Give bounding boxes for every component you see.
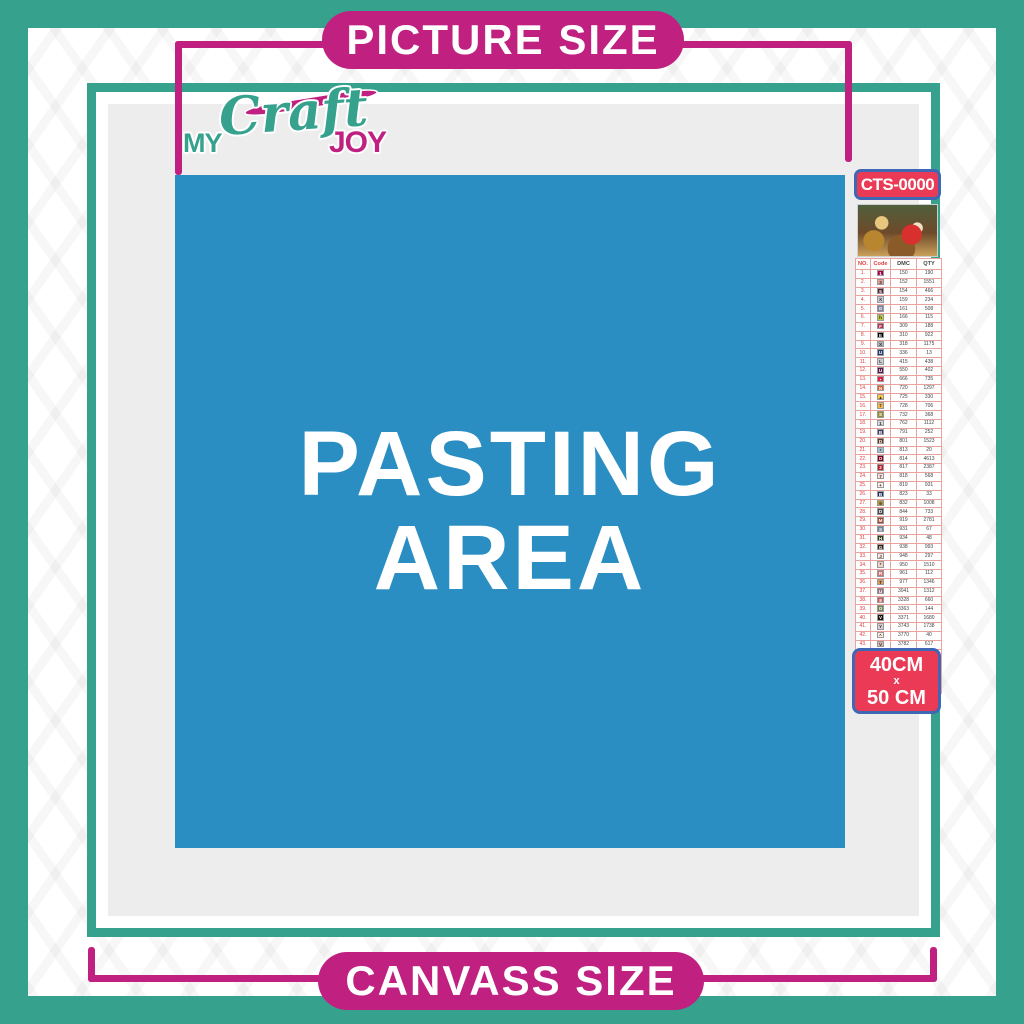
cell-dmc: 666 — [891, 375, 917, 384]
table-row: 28.D844733 — [856, 508, 942, 517]
table-row: 20.D8011523 — [856, 437, 942, 446]
table-row: 6.h166115 — [856, 314, 942, 323]
cell-qty: 733 — [917, 508, 942, 517]
cell-dmc: 720 — [891, 384, 917, 393]
cell-qty: 1551 — [917, 278, 942, 287]
code-symbol-swatch: D — [877, 438, 883, 444]
code-symbol-swatch: T — [877, 579, 883, 585]
cell-dmc: 550 — [891, 367, 917, 376]
cell-dmc: 310 — [891, 331, 917, 340]
cell-no: 15. — [856, 393, 871, 402]
cell-no: 23. — [856, 464, 871, 473]
cell-dmc: 762 — [891, 420, 917, 429]
table-row: 2.31521551 — [856, 278, 942, 287]
dmc-table-body: 1.11501902.315215513.51544664.X1592345.G… — [856, 270, 942, 694]
cell-qty: 4613 — [917, 455, 942, 464]
cell-qty: 20 — [917, 446, 942, 455]
table-row: 24.7818568 — [856, 473, 942, 482]
header-no: NO. — [856, 259, 871, 270]
cell-code: J — [871, 552, 891, 561]
code-symbol-swatch: U — [877, 588, 883, 594]
cell-dmc: 950 — [891, 561, 917, 570]
product-template-card: MY Craft JOY PASTING AREA CTS-0000 NO. C… — [0, 0, 1024, 1024]
cell-no: 10. — [856, 349, 871, 358]
table-row: 10.U33613 — [856, 349, 942, 358]
pasting-area-line1: PASTING — [298, 418, 721, 512]
cell-no: 6. — [856, 314, 871, 323]
cell-dmc: 3363 — [891, 605, 917, 614]
cell-dmc: 166 — [891, 314, 917, 323]
cell-no: 28. — [856, 508, 871, 517]
cell-dmc: 801 — [891, 437, 917, 446]
code-symbol-swatch: D — [877, 508, 883, 514]
table-row: 40.V33711680 — [856, 614, 942, 623]
cell-qty: 438 — [917, 358, 942, 367]
code-symbol-swatch: 1 — [877, 270, 883, 276]
cell-code: F — [871, 322, 891, 331]
table-row: 4.X159234 — [856, 296, 942, 305]
cell-code: L — [871, 358, 891, 367]
cell-code: M — [871, 517, 891, 526]
table-row: 35.R961112 — [856, 570, 942, 579]
cell-no: 42. — [856, 631, 871, 640]
header-dmc: DMC — [891, 259, 917, 270]
cell-no: 12. — [856, 367, 871, 376]
cell-dmc: 150 — [891, 270, 917, 279]
cell-dmc: 948 — [891, 552, 917, 561]
table-row: 1.1150190 — [856, 270, 942, 279]
cell-code: 1 — [871, 420, 891, 429]
code-symbol-swatch: + — [877, 482, 883, 488]
cell-code: E — [871, 331, 891, 340]
table-row: 25.+819931 — [856, 481, 942, 490]
code-symbol-swatch: 5 — [877, 288, 883, 294]
cell-qty: 568 — [917, 473, 942, 482]
cell-code: 2 — [871, 464, 891, 473]
cell-qty: 922 — [917, 331, 942, 340]
cell-no: 4. — [856, 296, 871, 305]
cell-no: 2. — [856, 278, 871, 287]
cell-no: 25. — [856, 481, 871, 490]
table-row: 21.*81320 — [856, 446, 942, 455]
cell-qty: 67 — [917, 526, 942, 535]
cell-qty: 330 — [917, 393, 942, 402]
code-symbol-swatch: X — [877, 296, 883, 302]
cell-dmc: 931 — [891, 526, 917, 535]
picture-frame-line-right — [845, 41, 852, 162]
cell-qty: 1175 — [917, 340, 942, 349]
table-row: 7.F309188 — [856, 322, 942, 331]
cell-qty: 48 — [917, 534, 942, 543]
size-height: 50 CM — [867, 688, 926, 708]
cell-code: * — [871, 561, 891, 570]
code-symbol-swatch: 9 — [877, 500, 883, 506]
cell-dmc: 919 — [891, 517, 917, 526]
cell-code: 8 — [871, 596, 891, 605]
cell-no: 33. — [856, 552, 871, 561]
cell-no: 13. — [856, 375, 871, 384]
code-symbol-swatch: M — [877, 517, 883, 523]
cell-dmc: 818 — [891, 473, 917, 482]
table-row: 12.U550402 — [856, 367, 942, 376]
cell-code: D — [871, 508, 891, 517]
cell-qty: 190 — [917, 270, 942, 279]
cell-dmc: 154 — [891, 287, 917, 296]
brand-logo: MY Craft JOY — [183, 98, 393, 168]
cell-no: 7. — [856, 322, 871, 331]
cell-dmc: 791 — [891, 428, 917, 437]
table-row: 13.▪666735 — [856, 375, 942, 384]
cell-code: S — [871, 411, 891, 420]
cell-code: U — [871, 587, 891, 596]
cell-code: 7 — [871, 473, 891, 482]
code-symbol-swatch: V — [877, 614, 883, 620]
cell-no: 5. — [856, 305, 871, 314]
cell-code: U — [871, 349, 891, 358]
cell-no: 11. — [856, 358, 871, 367]
table-row: 17.S732368 — [856, 411, 942, 420]
cell-qty: 1008 — [917, 499, 942, 508]
cell-no: 17. — [856, 411, 871, 420]
pasting-area-line2: AREA — [374, 512, 647, 606]
header-code: Code — [871, 259, 891, 270]
cell-dmc: 725 — [891, 393, 917, 402]
cell-dmc: 3328 — [891, 596, 917, 605]
code-symbol-swatch: 1 — [877, 420, 883, 426]
cell-qty: 188 — [917, 322, 942, 331]
cell-dmc: 318 — [891, 340, 917, 349]
table-row: 18.17621112 — [856, 420, 942, 429]
code-symbol-swatch: O — [877, 605, 883, 611]
cell-qty: 40 — [917, 631, 942, 640]
code-symbol-swatch: L — [877, 358, 883, 364]
picture-frame-line-left — [175, 41, 182, 175]
cell-code: H — [871, 534, 891, 543]
code-symbol-swatch: B — [877, 429, 883, 435]
code-symbol-swatch: 3 — [877, 279, 883, 285]
cell-code: 5 — [871, 287, 891, 296]
cell-code: G — [871, 305, 891, 314]
cell-code: D — [871, 437, 891, 446]
table-row: 38.83328660 — [856, 596, 942, 605]
code-symbol-swatch: 8 — [877, 597, 883, 603]
code-symbol-swatch: R — [877, 570, 883, 576]
cell-dmc: 832 — [891, 499, 917, 508]
kit-preview-image — [857, 204, 938, 257]
cell-no: 40. — [856, 614, 871, 623]
code-symbol-swatch: F — [877, 323, 883, 329]
table-row: 27.98321008 — [856, 499, 942, 508]
canvass-frame-hook-right — [930, 947, 937, 982]
code-symbol-swatch: * — [877, 447, 883, 453]
table-header-row: NO. Code DMC QTY — [856, 259, 942, 270]
cell-code: 1 — [871, 270, 891, 279]
code-symbol-swatch: U — [877, 367, 883, 373]
table-row: 30.S93167 — [856, 526, 942, 535]
cell-dmc: 152 — [891, 278, 917, 287]
pasting-area: PASTING AREA — [175, 175, 845, 848]
cell-qty: 508 — [917, 305, 942, 314]
table-row: 14.N7201297 — [856, 384, 942, 393]
picture-size-banner: PICTURE SIZE — [322, 11, 684, 69]
cell-no: 36. — [856, 578, 871, 587]
table-row: 34.*9501510 — [856, 561, 942, 570]
cell-dmc: 415 — [891, 358, 917, 367]
cell-qty: 466 — [917, 287, 942, 296]
cell-dmc: 3041 — [891, 587, 917, 596]
cell-code: V — [871, 614, 891, 623]
cell-dmc: 3770 — [891, 631, 917, 640]
cell-code: + — [871, 481, 891, 490]
table-row: 22.O8144613 — [856, 455, 942, 464]
cell-code: N — [871, 384, 891, 393]
table-row: 16.7728706 — [856, 402, 942, 411]
table-row: 42.^377040 — [856, 631, 942, 640]
code-symbol-swatch: H — [877, 535, 883, 541]
cell-dmc: 817 — [891, 464, 917, 473]
cell-no: 22. — [856, 455, 871, 464]
cell-no: 9. — [856, 340, 871, 349]
logo-word-joy: JOY — [329, 126, 386, 160]
cell-code: U — [871, 367, 891, 376]
cell-no: 1. — [856, 270, 871, 279]
table-row: 32.G938993 — [856, 543, 942, 552]
cell-no: 8. — [856, 331, 871, 340]
header-qty: QTY — [917, 259, 942, 270]
cell-dmc: 814 — [891, 455, 917, 464]
code-symbol-swatch: V — [877, 641, 883, 647]
cell-no: 31. — [856, 534, 871, 543]
logo-word-my: MY — [183, 128, 222, 159]
table-row: 5.G161508 — [856, 305, 942, 314]
code-symbol-swatch: S — [877, 411, 883, 417]
cell-no: 16. — [856, 402, 871, 411]
cell-dmc: 938 — [891, 543, 917, 552]
table-row: 29.M9192781 — [856, 517, 942, 526]
cell-code: B — [871, 428, 891, 437]
cell-qty: 1523 — [917, 437, 942, 446]
cell-qty: 1112 — [917, 420, 942, 429]
table-row: 3.5154466 — [856, 287, 942, 296]
cell-no: 32. — [856, 543, 871, 552]
code-symbol-swatch: h — [877, 314, 883, 320]
cell-qty: 115 — [917, 314, 942, 323]
cell-qty: 368 — [917, 411, 942, 420]
cell-code: ^ — [871, 631, 891, 640]
table-row: 37.U30411312 — [856, 587, 942, 596]
cell-code: h — [871, 314, 891, 323]
cell-dmc: 728 — [891, 402, 917, 411]
cell-no: 29. — [856, 517, 871, 526]
cell-qty: 1680 — [917, 614, 942, 623]
cell-dmc: 823 — [891, 490, 917, 499]
canvass-size-banner: CANVASS SIZE — [318, 952, 704, 1010]
table-row: 36.T9771346 — [856, 578, 942, 587]
cell-code: B — [871, 490, 891, 499]
code-symbol-swatch: S — [877, 526, 883, 532]
code-symbol-swatch: * — [877, 561, 883, 567]
table-row: 8.E310922 — [856, 331, 942, 340]
table-row: 41.Y37431738 — [856, 623, 942, 632]
code-symbol-swatch: G — [877, 305, 883, 311]
cell-qty: 2781 — [917, 517, 942, 526]
cell-qty: 2387 — [917, 464, 942, 473]
cell-qty: 931 — [917, 481, 942, 490]
cell-qty: 735 — [917, 375, 942, 384]
code-symbol-swatch: 2 — [877, 464, 883, 470]
code-symbol-swatch: ▲ — [877, 394, 883, 400]
cell-no: 37. — [856, 587, 871, 596]
cell-qty: 993 — [917, 543, 942, 552]
cell-no: 30. — [856, 526, 871, 535]
size-width: 40CM — [870, 655, 923, 675]
cell-dmc: 159 — [891, 296, 917, 305]
table-row: 9.X3181175 — [856, 340, 942, 349]
code-symbol-swatch: G — [877, 544, 883, 550]
cell-dmc: 732 — [891, 411, 917, 420]
code-symbol-swatch: X — [877, 341, 883, 347]
cell-dmc: 336 — [891, 349, 917, 358]
cell-code: ▲ — [871, 393, 891, 402]
cell-dmc: 309 — [891, 322, 917, 331]
code-symbol-swatch: 7 — [877, 402, 883, 408]
cell-qty: 706 — [917, 402, 942, 411]
size-x: x — [893, 676, 899, 687]
cell-qty: 1738 — [917, 623, 942, 632]
cell-qty: 1312 — [917, 587, 942, 596]
table-row: 11.L415438 — [856, 358, 942, 367]
cell-no: 39. — [856, 605, 871, 614]
cell-qty: 144 — [917, 605, 942, 614]
cell-dmc: 161 — [891, 305, 917, 314]
cell-no: 14. — [856, 384, 871, 393]
cell-dmc: 844 — [891, 508, 917, 517]
canvas-size-badge: 40CM x 50 CM — [852, 648, 941, 714]
table-row: 19.B791252 — [856, 428, 942, 437]
cell-code: G — [871, 543, 891, 552]
cell-code: O — [871, 605, 891, 614]
cell-dmc: 3743 — [891, 623, 917, 632]
cell-qty: 1297 — [917, 384, 942, 393]
cell-code: X — [871, 296, 891, 305]
cell-code: ▪ — [871, 375, 891, 384]
code-symbol-swatch: J — [877, 553, 883, 559]
cell-qty: 297 — [917, 552, 942, 561]
canvass-frame-hook-left — [88, 947, 95, 982]
cell-qty: 13 — [917, 349, 942, 358]
cell-qty: 112 — [917, 570, 942, 579]
table-row: 26.B82333 — [856, 490, 942, 499]
code-symbol-swatch: N — [877, 385, 883, 391]
cell-no: 24. — [856, 473, 871, 482]
cell-qty: 402 — [917, 367, 942, 376]
cell-code: O — [871, 455, 891, 464]
cell-qty: 1346 — [917, 578, 942, 587]
cell-qty: 234 — [917, 296, 942, 305]
cell-no: 34. — [856, 561, 871, 570]
code-symbol-swatch: 7 — [877, 473, 883, 479]
table-row: 33.J948297 — [856, 552, 942, 561]
cell-qty: 252 — [917, 428, 942, 437]
cell-no: 35. — [856, 570, 871, 579]
table-row: 31.H93448 — [856, 534, 942, 543]
cell-no: 38. — [856, 596, 871, 605]
cell-qty: 33 — [917, 490, 942, 499]
code-symbol-swatch: ▪ — [877, 376, 883, 382]
cell-no: 41. — [856, 623, 871, 632]
cell-dmc: 977 — [891, 578, 917, 587]
cell-code: X — [871, 340, 891, 349]
cell-qty: 1510 — [917, 561, 942, 570]
cell-no: 21. — [856, 446, 871, 455]
cell-dmc: 961 — [891, 570, 917, 579]
cell-qty: 660 — [917, 596, 942, 605]
cell-code: 7 — [871, 402, 891, 411]
cell-no: 19. — [856, 428, 871, 437]
cell-code: 3 — [871, 278, 891, 287]
cell-code: 9 — [871, 499, 891, 508]
cell-no: 26. — [856, 490, 871, 499]
cell-dmc: 819 — [891, 481, 917, 490]
table-row: 39.O3363144 — [856, 605, 942, 614]
code-symbol-swatch: O — [877, 455, 883, 461]
sku-badge: CTS-0000 — [854, 169, 941, 200]
code-symbol-swatch: B — [877, 491, 883, 497]
cell-dmc: 3371 — [891, 614, 917, 623]
table-row: 23.28172387 — [856, 464, 942, 473]
cell-dmc: 813 — [891, 446, 917, 455]
dmc-color-table: NO. Code DMC QTY 1.11501902.315215513.51… — [855, 258, 942, 694]
cell-dmc: 934 — [891, 534, 917, 543]
cell-code: T — [871, 578, 891, 587]
cell-code: Y — [871, 623, 891, 632]
code-symbol-swatch: Y — [877, 623, 883, 629]
code-symbol-swatch: ^ — [877, 632, 883, 638]
cell-code: S — [871, 526, 891, 535]
cell-no: 27. — [856, 499, 871, 508]
code-symbol-swatch: E — [877, 332, 883, 338]
cell-no: 18. — [856, 420, 871, 429]
code-symbol-swatch: U — [877, 349, 883, 355]
cell-code: * — [871, 446, 891, 455]
cell-no: 20. — [856, 437, 871, 446]
table-row: 15.▲725330 — [856, 393, 942, 402]
cell-code: R — [871, 570, 891, 579]
cell-no: 3. — [856, 287, 871, 296]
